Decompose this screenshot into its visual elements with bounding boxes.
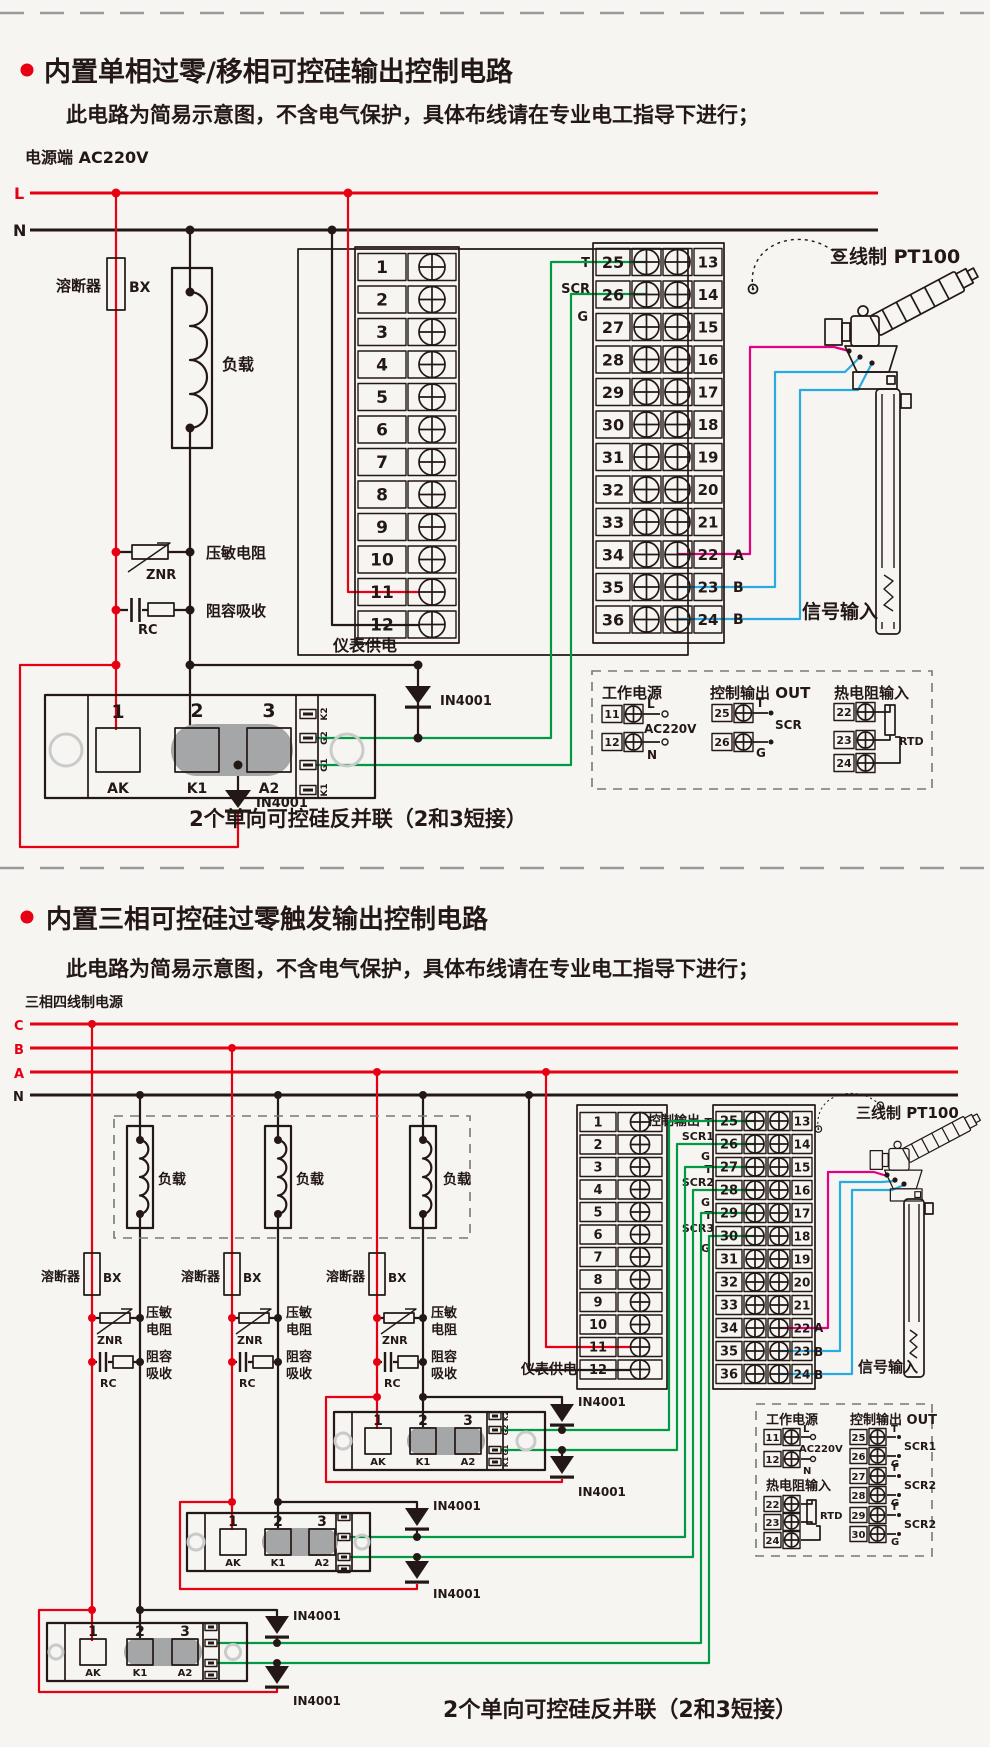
varistor-code: ZNR — [146, 568, 176, 583]
varistor-label-1: 压敏 — [146, 1305, 173, 1321]
junction-dot — [869, 360, 874, 365]
section2-subtitle: 此电路为简易示意图，不含电气保护，具体布线请在专业电工指导下进行； — [66, 957, 759, 981]
load-label: 负载 — [443, 1171, 471, 1188]
legend-box: 工作电源 控制输出 OUT 热电阻输入 L AC220V N T SCR G R… — [592, 671, 932, 789]
module-pin-k1: K1 — [133, 1668, 148, 1679]
terminal-number: 24 — [698, 611, 719, 629]
junction-dot — [136, 1136, 144, 1144]
load-label: 负载 — [296, 1171, 324, 1188]
terminal-number: 17 — [794, 1206, 811, 1220]
terminal-number: 34 — [602, 545, 624, 564]
terminal-number: 33 — [602, 513, 624, 532]
bus-l-label: L — [14, 184, 24, 203]
junction-dot — [186, 661, 195, 670]
module-side-k1: K1 — [320, 783, 330, 796]
junction-dot — [373, 1068, 381, 1076]
wiring-diagram: 内置单相过零/移相可控硅输出控制电路 此电路为简易示意图，不含电气保护，具体布线… — [0, 0, 990, 1747]
terminal-number: 35 — [720, 1345, 738, 1360]
junction-dot — [136, 1358, 144, 1366]
pt100-label: 三线制 PT100 — [856, 1104, 959, 1122]
junction-dot — [112, 661, 121, 670]
terminal-number: 29 — [602, 383, 624, 402]
terminal-number: 21 — [698, 513, 719, 531]
legend-scr1: SCR1 — [904, 1440, 936, 1453]
section1: 内置单相过零/移相可控硅输出控制电路 此电路为简易示意图，不含电气保护，具体布线… — [13, 56, 981, 847]
legend-terminal-number: 23 — [836, 734, 851, 747]
load-coil-icon — [190, 292, 207, 428]
terminal-number: 22 — [794, 1321, 811, 1335]
junction-dot — [186, 226, 195, 235]
section2-title: 内置三相可控硅过零触发输出控制电路 — [46, 904, 489, 935]
legend-scr: SCR — [775, 718, 802, 732]
fuse-label: 溶断器 — [56, 277, 102, 295]
diode-label: IN4001 — [293, 1609, 341, 1623]
module-pin-k1: K1 — [187, 781, 208, 797]
fuse-code: BX — [243, 1271, 262, 1285]
legend-terminal-number: 27 — [852, 1472, 866, 1483]
legend-terminal: 24 — [764, 1532, 800, 1549]
junction-dot — [373, 1358, 381, 1366]
sensor-b2-label: B — [733, 612, 744, 628]
terminal-number: 13 — [698, 253, 719, 271]
diode-label: IN4001 — [433, 1587, 481, 1601]
terminal-number: 2 — [376, 291, 388, 311]
wiring-diagram-page: 内置单相过零/移相可控硅输出控制电路 此电路为简易示意图，不含电气保护，具体布线… — [0, 0, 990, 1747]
terminal-number: 20 — [698, 481, 719, 499]
module-terminal-3: 3 — [180, 1624, 190, 1640]
junction-dot — [525, 1091, 533, 1099]
junction-dot — [274, 1136, 282, 1144]
terminal-number: 21 — [794, 1298, 811, 1312]
legend-terminal-number: 26 — [714, 736, 730, 749]
terminal-number: 32 — [602, 480, 624, 499]
terminal-number: 8 — [593, 1273, 602, 1288]
out-g-label: G — [577, 310, 588, 325]
junction-dot — [136, 1210, 144, 1218]
power-source-label: 电源端 AC220V — [25, 148, 149, 167]
legend-terminal: 12 — [602, 733, 643, 752]
legend-terminal-number: 24 — [836, 757, 852, 770]
legend-g: G — [756, 746, 766, 760]
junction-dot — [274, 1210, 282, 1218]
legend-terminal-number: 25 — [852, 1433, 866, 1444]
junction-dot — [419, 1136, 427, 1144]
rc-code: RC — [239, 1377, 256, 1390]
module-terminal-2: 2 — [135, 1624, 145, 1640]
generated-terminals: 1234567891011122513261427152816291730183… — [88, 189, 907, 1689]
out-scr2-label: SCR2 — [682, 1176, 714, 1189]
junction-dot — [88, 1020, 96, 1028]
terminal-number: 15 — [698, 318, 719, 336]
legend-rtd-code: RTD — [899, 735, 924, 748]
module-side-g2: G2 — [502, 1425, 510, 1436]
rc-label-1: 阻容 — [146, 1349, 172, 1365]
legend-rtd-title: 热电阻输入 — [766, 1478, 831, 1494]
diode-icon — [550, 1404, 574, 1427]
junction-dot — [846, 348, 851, 353]
module-side-k2: K2 — [502, 1411, 510, 1421]
legend-l: L — [647, 697, 655, 711]
bus-n-label: N — [13, 1090, 24, 1105]
out-t-label: T — [581, 256, 590, 271]
terminal-number: 3 — [376, 323, 388, 343]
legend-scr3: SCR2 — [904, 1518, 936, 1531]
legend-n: N — [647, 748, 657, 762]
sensor-b1-label: B — [733, 580, 744, 596]
terminal-number: 30 — [602, 415, 624, 434]
junction-dot — [186, 424, 195, 433]
junction-dot — [884, 1172, 889, 1177]
junction-dot — [88, 1314, 96, 1322]
diode-label: IN4001 — [433, 1499, 481, 1513]
terminal-number: 12 — [370, 616, 394, 636]
junction-dot — [88, 1358, 96, 1366]
fuse-code: BX — [103, 1271, 122, 1285]
junction-dot — [228, 1498, 236, 1506]
diode-icon — [550, 1456, 574, 1479]
diode-label: IN4001 — [293, 1694, 341, 1708]
terminal-number: 28 — [602, 350, 624, 369]
varistor-label-1: 压敏 — [286, 1305, 313, 1321]
junction-dot — [419, 1314, 427, 1322]
terminal-number: 14 — [794, 1137, 811, 1151]
junction-dot — [328, 226, 337, 235]
rc-label-2: 吸收 — [286, 1366, 313, 1382]
terminal-number: 18 — [698, 416, 719, 434]
junction-dot — [112, 189, 121, 198]
terminal-number: 19 — [698, 448, 719, 466]
left-terminal-strip-1: 123456789101112 — [355, 247, 459, 643]
legend-power-title: 工作电源 — [766, 1412, 818, 1428]
module-pin-ak: AK — [370, 1457, 387, 1468]
legend-terminal: 25 — [712, 704, 753, 723]
legend-terminal-number: 12 — [604, 736, 619, 749]
junction-dot — [228, 1044, 236, 1052]
terminal-number: 11 — [370, 583, 394, 603]
resistor-icon — [148, 603, 174, 616]
legend-terminal-number: 22 — [836, 706, 851, 719]
terminal-number: 9 — [376, 518, 388, 538]
terminal-number: 36 — [602, 610, 624, 629]
diode-label: IN4001 — [578, 1485, 626, 1499]
terminal-number: 19 — [794, 1252, 811, 1266]
signal-input-label: 信号输入 — [858, 1358, 918, 1376]
bus-b-label: B — [14, 1043, 24, 1058]
bullet-icon — [21, 911, 34, 924]
junction-dot — [901, 1181, 906, 1186]
terminal-number: 36 — [720, 1368, 738, 1383]
load-label: 负载 — [222, 355, 254, 374]
module-pin-a2: A2 — [178, 1668, 193, 1679]
junction-dot — [413, 1533, 421, 1541]
legend-t: T — [891, 1463, 898, 1474]
legend-terminal-number: 25 — [714, 707, 729, 720]
module-pin-ak: AK — [85, 1668, 102, 1679]
fuse-label: 溶断器 — [326, 1269, 366, 1285]
legend-terminal-number: 24 — [766, 1536, 780, 1547]
legend-terminal-number: 28 — [852, 1491, 866, 1502]
terminal-number: 7 — [593, 1251, 602, 1266]
legend-terminal-number: 26 — [852, 1452, 866, 1463]
legend-terminal: 26 — [712, 733, 753, 752]
module-terminal-3: 3 — [463, 1413, 473, 1429]
junction-dot — [273, 1659, 281, 1667]
terminal-number: 35 — [602, 578, 624, 597]
out-scr3-label: SCR3 — [682, 1222, 714, 1235]
terminal-number: 30 — [720, 1230, 738, 1245]
terminal-number: 28 — [720, 1184, 738, 1199]
rc-code: RC — [138, 623, 158, 638]
rc-label-2: 吸收 — [431, 1366, 458, 1382]
module-terminal-1: 1 — [88, 1624, 98, 1640]
section1-title: 内置单相过零/移相可控硅输出控制电路 — [44, 56, 514, 88]
diode-icon — [405, 1508, 429, 1531]
module-terminal-1: 1 — [111, 701, 124, 723]
junction-dot — [413, 1553, 421, 1561]
load-label: 负载 — [158, 1171, 186, 1188]
junction-dot — [136, 1314, 144, 1322]
varistor-label: 压敏电阻 — [206, 544, 266, 562]
meter-supply-label: 仪表供电 — [332, 636, 397, 655]
diode1-label: IN4001 — [440, 694, 492, 709]
legend-t: T — [891, 1502, 898, 1513]
rc-label-1: 阻容 — [286, 1349, 312, 1365]
legend-terminal: 22 — [834, 703, 875, 722]
module-pin-a2: A2 — [259, 781, 280, 797]
junction-dot — [558, 1426, 566, 1434]
terminal-number: 10 — [589, 1318, 607, 1333]
junction-dot — [414, 661, 423, 670]
bus-n-label: N — [13, 221, 26, 240]
diode-icon — [265, 1666, 289, 1689]
junction-dot — [273, 1639, 281, 1647]
legend-terminal: 11 — [764, 1429, 800, 1446]
pt100-shaft — [876, 389, 911, 634]
legend-terminal: 23 — [834, 731, 875, 750]
terminal-number: 4 — [593, 1183, 602, 1198]
module-terminal-2: 2 — [190, 700, 203, 722]
junction-dot — [136, 1606, 144, 1614]
terminal-number: 16 — [794, 1183, 811, 1197]
junction-dot — [274, 1358, 282, 1366]
terminal-number: 15 — [794, 1160, 811, 1174]
terminal-number: 27 — [602, 318, 624, 337]
fuse-label: 溶断器 — [181, 1269, 221, 1285]
fuse-code: BX — [129, 280, 151, 296]
pt100-shaft — [904, 1199, 933, 1377]
rc-label-1: 阻容 — [431, 1349, 457, 1365]
module-terminal-1: 1 — [373, 1413, 383, 1429]
terminal-number: 25 — [602, 253, 624, 272]
diode-icon — [405, 1561, 429, 1584]
module-side-k2: K2 — [320, 707, 330, 720]
junction-dot — [373, 1314, 381, 1322]
module-terminal-2: 2 — [418, 1413, 428, 1429]
terminal-number: 6 — [593, 1228, 602, 1243]
terminal-number: 32 — [720, 1276, 738, 1291]
pt100-label: 三线制 PT100 — [830, 245, 960, 268]
junction-dot — [558, 1446, 566, 1454]
legend-terminal-number: 22 — [766, 1500, 780, 1511]
out-g-label: G — [701, 1196, 710, 1209]
legend-terminal: 26 — [850, 1448, 886, 1465]
junction-dot — [228, 1314, 236, 1322]
terminal-number: 13 — [794, 1114, 811, 1128]
scr-module: 1 2 3 AK K1 A2 K2 G2 G1 K1 — [45, 695, 375, 798]
out-scr1-label: SCR1 — [682, 1130, 714, 1143]
rc-label: 阻容吸收 — [206, 602, 266, 620]
out-t-label: T — [704, 1163, 712, 1176]
right-terminal-strip-1: 2513261427152816291730183119322033213422… — [593, 243, 724, 643]
mount-hole-icon — [50, 734, 82, 766]
terminal-number: 27 — [720, 1161, 738, 1176]
terminal-number: 8 — [376, 486, 388, 506]
junction-dot — [344, 189, 353, 198]
terminal-number: 18 — [794, 1229, 811, 1243]
legend-terminal: 23 — [764, 1514, 800, 1531]
terminal-number: 6 — [376, 421, 388, 441]
legend-terminal-number: 30 — [852, 1530, 866, 1541]
legend-scr2: SCR2 — [904, 1479, 936, 1492]
terminal-number: 26 — [720, 1138, 738, 1153]
legend-terminal: 22 — [764, 1496, 800, 1513]
rc-code: RC — [384, 1377, 401, 1390]
junction-dot — [186, 606, 195, 615]
legend-n: N — [803, 1466, 811, 1477]
right-terminal-strip-2: 2513261427152816291730183119322033213422… — [713, 1105, 815, 1389]
legend-terminal: 30 — [850, 1526, 886, 1543]
terminal-number: 29 — [720, 1207, 738, 1222]
terminal-number: 31 — [602, 448, 624, 467]
varistor-code: ZNR — [237, 1334, 263, 1347]
module-terminal-2: 2 — [273, 1514, 283, 1530]
junction-dot — [419, 1091, 427, 1099]
sensor-a-label: A — [733, 548, 744, 564]
junction-dot — [414, 734, 423, 743]
terminal-number: 7 — [376, 453, 388, 473]
terminal-number: 16 — [698, 351, 719, 369]
legend-terminal-number: 29 — [852, 1511, 866, 1522]
terminal-number: 3 — [593, 1161, 602, 1176]
rc-label-2: 吸收 — [146, 1366, 173, 1382]
module-terminal-3: 3 — [317, 1514, 327, 1530]
legend-terminal: 11 — [602, 705, 643, 724]
module-pin-a2: A2 — [315, 1558, 330, 1569]
signal-input-label: 信号输入 — [802, 600, 878, 623]
terminal-number: 25 — [720, 1115, 738, 1130]
terminal-number: 31 — [720, 1253, 738, 1268]
meter-supply-label: 仪表供电 — [520, 1361, 577, 1378]
scr-module-a: 1 2 3 AK K1 A2 K2 G2 G1 K1 — [334, 1411, 545, 1470]
module-pin-ak: AK — [107, 781, 130, 797]
power-source-label: 三相四线制电源 — [25, 994, 123, 1011]
terminal-number: 10 — [370, 551, 394, 571]
terminal-number: 4 — [376, 356, 388, 376]
junction-dot — [542, 1068, 550, 1076]
legend-terminal: 29 — [850, 1507, 886, 1524]
rc-code: RC — [100, 1377, 117, 1390]
junction-dot — [112, 548, 121, 557]
legend-terminal: 12 — [764, 1451, 800, 1468]
terminal-number: 17 — [698, 383, 719, 401]
legend-terminal: 27 — [850, 1468, 886, 1485]
section1-subtitle: 此电路为简易示意图，不含电气保护，具体布线请在专业电工指导下进行； — [66, 103, 759, 127]
module-pin-a2: A2 — [461, 1457, 476, 1468]
terminal-number: 1 — [376, 258, 388, 278]
junction-dot — [112, 606, 121, 615]
legend-g: G — [891, 1537, 899, 1548]
module-side-g2: G2 — [320, 731, 330, 745]
terminal-number: 33 — [720, 1299, 738, 1314]
junction-dot — [186, 288, 195, 297]
terminal-number: 23 — [698, 578, 719, 596]
legend-rtd-title: 热电阻输入 — [834, 684, 909, 702]
legend-ac220v: AC220V — [644, 722, 697, 736]
junction-dot — [373, 1393, 381, 1401]
legend-terminal: 28 — [850, 1487, 886, 1504]
module-pin-k1: K1 — [271, 1558, 286, 1569]
scr-module-b: 1 2 3 AK K1 A2 — [187, 1513, 370, 1571]
diode-label: IN4001 — [578, 1395, 626, 1409]
out-t-label: T — [704, 1116, 712, 1129]
module-side-g1: G1 — [502, 1445, 510, 1456]
junction-dot — [419, 1393, 427, 1401]
terminal-number: 5 — [376, 388, 388, 408]
out-t-label: T — [704, 1209, 712, 1222]
junction-dot — [234, 761, 243, 770]
varistor-label-2: 电阻 — [431, 1322, 457, 1338]
terminal-number: 24 — [794, 1367, 811, 1381]
junction-dot — [274, 1498, 282, 1506]
terminal-number: 14 — [698, 286, 719, 304]
junction-dot — [186, 548, 195, 557]
varistor-code: ZNR — [97, 1334, 123, 1347]
junction-dot — [274, 1091, 282, 1099]
legend-terminal-number: 23 — [766, 1518, 780, 1529]
module-pin-k1: K1 — [416, 1457, 431, 1468]
legend-terminal-number: 11 — [766, 1433, 780, 1444]
junction-dot — [857, 354, 862, 359]
module-terminal-1: 1 — [228, 1514, 238, 1530]
legend-terminal: 25 — [850, 1429, 886, 1446]
module-caption: 2个单向可控硅反并联（2和3短接） — [443, 1697, 797, 1723]
terminal-number: 11 — [589, 1341, 607, 1356]
junction-dot — [274, 1314, 282, 1322]
legend-ac220v: AC220V — [799, 1444, 843, 1455]
junction-dot — [88, 1606, 96, 1614]
short-bar-2-3 — [171, 724, 293, 776]
bullet-icon — [21, 64, 34, 77]
junction-dot — [419, 1358, 427, 1366]
section2: 内置三相可控硅过零触发输出控制电路 此电路为简易示意图，不含电气保护，具体布线请… — [13, 904, 982, 1723]
terminal-number: 9 — [593, 1296, 602, 1311]
varistor-label-2: 电阻 — [146, 1322, 172, 1338]
legend-l: L — [803, 1424, 810, 1435]
legend-terminal-number: 12 — [766, 1455, 780, 1466]
varistor-label-1: 压敏 — [431, 1305, 458, 1321]
fuse-label: 溶断器 — [41, 1269, 81, 1285]
legend-t: T — [756, 696, 765, 710]
legend-terminal: 24 — [834, 754, 875, 773]
legend-terminal-number: 11 — [604, 708, 619, 721]
fuse-code: BX — [388, 1271, 407, 1285]
varistor-label-2: 电阻 — [286, 1322, 312, 1338]
bus-a-label: A — [14, 1067, 24, 1082]
terminal-number: 1 — [593, 1116, 602, 1131]
terminal-number: 34 — [720, 1322, 738, 1337]
terminal-number: 2 — [593, 1138, 602, 1153]
bus-c-label: C — [14, 1019, 24, 1034]
